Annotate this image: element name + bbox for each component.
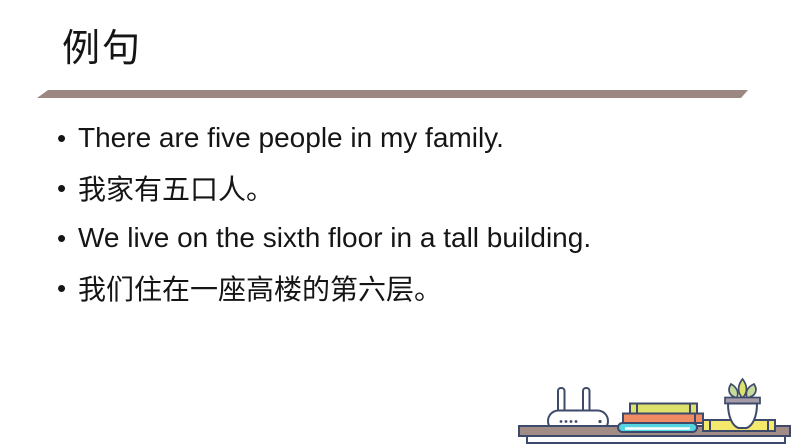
bullet-marker: •: [57, 223, 78, 254]
potted-plant-icon: [725, 379, 760, 428]
bullet-marker: •: [57, 173, 78, 204]
bullet-text-english-2: We live on the sixth floor in a tall bui…: [78, 222, 591, 254]
router-antenna-left: [558, 388, 565, 413]
bullet-text-chinese-2: 我们住在一座高楼的第六层。: [78, 268, 442, 308]
bullet-marker: •: [57, 273, 78, 304]
shelf-under-board: [527, 436, 785, 443]
bullet-item-1: • There are five people in my family.: [57, 113, 591, 163]
bullet-marker: •: [57, 123, 78, 154]
leaf-center: [739, 379, 747, 398]
plant-leaves: [729, 379, 756, 398]
slide-title: 例句: [62, 26, 142, 74]
bullet-list: • There are five people in my family. • …: [57, 113, 591, 313]
bullet-item-2: • 我家有五口人。: [57, 163, 591, 213]
book-middle-orange: [623, 414, 703, 424]
wifi-router-icon: [548, 388, 608, 432]
leaf-right: [746, 384, 756, 398]
pot-body: [728, 404, 757, 429]
bullet-item-3: • We live on the sixth floor in a tall b…: [57, 213, 591, 263]
bullet-item-4: • 我们住在一座高楼的第六层。: [57, 263, 591, 313]
leaf-left: [729, 384, 738, 398]
presentation-slide: 例句 • There are five people in my family.…: [0, 0, 794, 447]
desk-illustration: [504, 377, 794, 447]
router-antenna-right: [583, 388, 590, 413]
title-divider-bar: [37, 90, 748, 98]
books-stack-icon: [618, 404, 703, 433]
bullet-text-chinese-1: 我家有五口人。: [78, 168, 274, 208]
bullet-text-english-1: There are five people in my family.: [78, 122, 504, 154]
book-top-yellow-green: [630, 404, 697, 414]
